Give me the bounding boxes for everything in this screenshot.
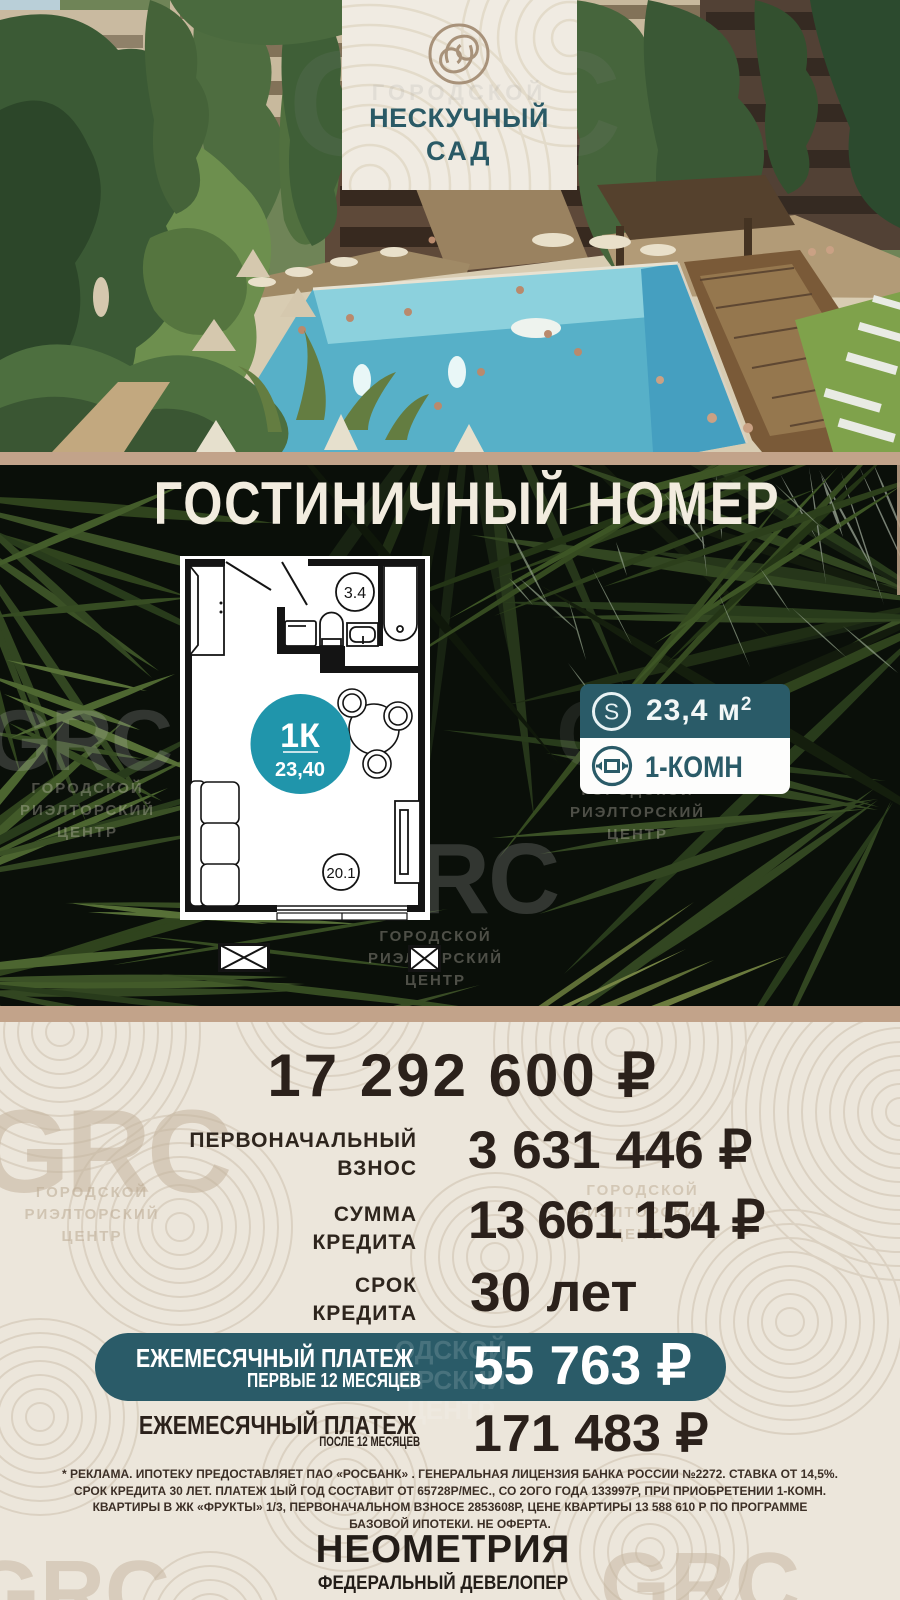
svg-text:ГОРОДСКОЙ: ГОРОДСКОЙ — [372, 80, 546, 105]
svg-text:S: S — [604, 699, 619, 725]
svg-text:НЕСКУЧНЫЙ: НЕСКУЧНЫЙ — [369, 102, 549, 133]
svg-text:3.4: 3.4 — [344, 585, 366, 602]
svg-text:1К: 1К — [280, 717, 320, 755]
svg-text:23,40: 23,40 — [275, 759, 325, 781]
svg-text:20.1: 20.1 — [326, 865, 355, 882]
svg-text:САД: САД — [426, 136, 492, 166]
